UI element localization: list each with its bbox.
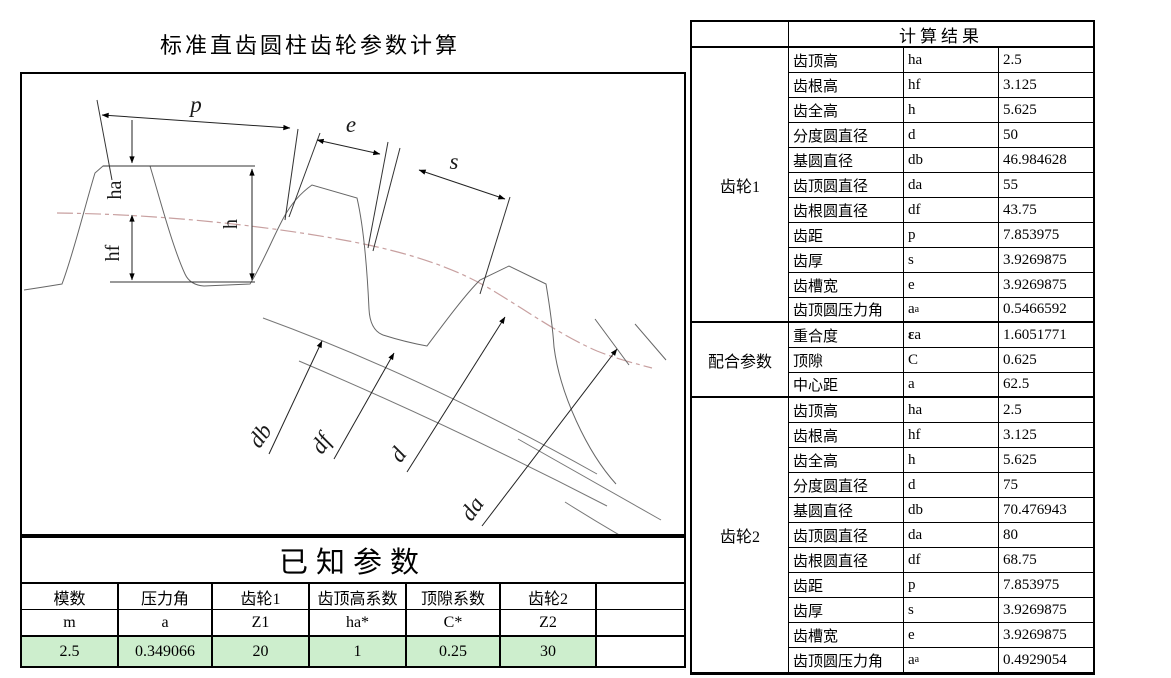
known-col-name: 模数 — [22, 584, 119, 610]
leader-da — [482, 349, 617, 526]
param-value: 46.984628 — [999, 148, 1093, 173]
param-symbol: a — [904, 373, 999, 398]
known-col-symbol: ha* — [310, 610, 407, 637]
known-col-value: 0.349066 — [119, 637, 213, 666]
results-header-empty-cell — [692, 22, 789, 48]
gear-calculation-sheet: 标准直齿圆柱齿轮参数计算 — [0, 0, 1171, 678]
param-value: 3.9269875 — [999, 273, 1093, 298]
section-label: 齿轮1 — [692, 48, 789, 323]
known-col-value: 2.5 — [22, 637, 119, 666]
param-value: 68.75 — [999, 548, 1093, 573]
param-symbol: aa — [904, 298, 999, 323]
known-params-table: 已知参数 模数压力角齿轮1齿顶高系数顶隙系数齿轮2maZ1ha*C*Z22.50… — [20, 536, 686, 668]
param-symbol: h — [904, 448, 999, 473]
param-name: 齿厚 — [789, 598, 904, 623]
param-symbol: aa — [904, 648, 999, 673]
known-col-value: 0.25 — [407, 637, 501, 666]
param-name: 齿根高 — [789, 73, 904, 98]
param-symbol: ha — [904, 398, 999, 423]
root-circle-arc — [299, 361, 607, 506]
known-col-symbol — [597, 610, 684, 637]
known-col-name: 齿顶高系数 — [310, 584, 407, 610]
results-header: 计算结果 — [789, 22, 1093, 48]
param-symbol: p — [904, 223, 999, 248]
label-ha: ha — [104, 180, 126, 199]
param-value: 3.9269875 — [999, 248, 1093, 273]
param-value: 2.5 — [999, 398, 1093, 423]
param-value: 55 — [999, 173, 1093, 198]
param-name: 齿顶圆压力角 — [789, 298, 904, 323]
known-col-name — [597, 584, 684, 610]
param-value: 3.125 — [999, 73, 1093, 98]
param-value: 50 — [999, 123, 1093, 148]
leader-lines — [269, 317, 617, 526]
param-symbol: s — [904, 598, 999, 623]
param-value: 62.5 — [999, 373, 1093, 398]
label-e: e — [346, 112, 356, 137]
outer-arc — [565, 502, 642, 534]
param-value: 3.9269875 — [999, 598, 1093, 623]
param-value: 0.625 — [999, 348, 1093, 373]
label-d: d — [384, 442, 411, 466]
gear-diagram: p e s ha hf h db df d da — [20, 72, 686, 536]
param-name: 重合度 — [789, 323, 904, 348]
param-name: 顶隙 — [789, 348, 904, 373]
section-label: 齿轮2 — [692, 398, 789, 673]
known-col-symbol: m — [22, 610, 119, 637]
param-name: 分度圆直径 — [789, 473, 904, 498]
known-col-name: 顶隙系数 — [407, 584, 501, 610]
param-value: 2.5 — [999, 48, 1093, 73]
param-name: 齿全高 — [789, 448, 904, 473]
known-col-symbol: Z2 — [501, 610, 597, 637]
param-symbol: df — [904, 198, 999, 223]
known-col-value: 20 — [213, 637, 310, 666]
known-col-value: 30 — [501, 637, 597, 666]
param-symbol: db — [904, 498, 999, 523]
gear-diagram-svg: p e s ha hf h db df d da — [22, 74, 684, 534]
label-df: df — [306, 426, 339, 458]
section-label: 配合参数 — [692, 323, 789, 398]
param-symbol: s — [904, 248, 999, 273]
param-value: 70.476943 — [999, 498, 1093, 523]
param-name: 齿根高 — [789, 423, 904, 448]
param-name: 齿顶圆直径 — [789, 523, 904, 548]
param-value: 0.5466592 — [999, 298, 1093, 323]
param-symbol: p — [904, 573, 999, 598]
param-value: 3.9269875 — [999, 623, 1093, 648]
param-symbol: e — [904, 273, 999, 298]
param-value: 1.6051771 — [999, 323, 1093, 348]
known-col-value: 1 — [310, 637, 407, 666]
dimension-e — [317, 140, 380, 154]
label-da: da — [455, 492, 489, 525]
known-col-name: 压力角 — [119, 584, 213, 610]
param-name: 齿距 — [789, 223, 904, 248]
param-symbol: hf — [904, 423, 999, 448]
param-name: 基圆直径 — [789, 498, 904, 523]
param-value: 0.4929054 — [999, 648, 1093, 673]
results-table: 计算结果 齿轮1齿顶高ha2.5齿根高hf3.125齿全高h5.625分度圆直径… — [690, 20, 1095, 675]
param-value: 80 — [999, 523, 1093, 548]
param-symbol: d — [904, 473, 999, 498]
tip-circle-tick — [595, 319, 629, 365]
known-col-symbol: a — [119, 610, 213, 637]
label-hf: hf — [102, 244, 124, 261]
known-col-value — [597, 637, 684, 666]
label-h: h — [220, 219, 242, 229]
param-value: 5.625 — [999, 98, 1093, 123]
param-name: 齿厚 — [789, 248, 904, 273]
param-name: 齿顶圆直径 — [789, 173, 904, 198]
label-s: s — [450, 149, 459, 174]
param-value: 7.853975 — [999, 573, 1093, 598]
param-symbol: db — [904, 148, 999, 173]
param-value: 7.853975 — [999, 223, 1093, 248]
param-value: 43.75 — [999, 198, 1093, 223]
param-name: 基圆直径 — [789, 148, 904, 173]
param-symbol: da — [904, 523, 999, 548]
param-symbol: d — [904, 123, 999, 148]
param-value: 75 — [999, 473, 1093, 498]
leader-df — [334, 353, 394, 459]
known-col-name: 齿轮1 — [213, 584, 310, 610]
known-col-name: 齿轮2 — [501, 584, 597, 610]
param-name: 齿根圆直径 — [789, 548, 904, 573]
param-name: 齿全高 — [789, 98, 904, 123]
page-title: 标准直齿圆柱齿轮参数计算 — [100, 28, 520, 60]
param-value: 3.125 — [999, 423, 1093, 448]
param-name: 齿顶高 — [789, 48, 904, 73]
param-symbol: da — [904, 173, 999, 198]
param-name: 齿顶圆压力角 — [789, 648, 904, 673]
param-symbol: h — [904, 98, 999, 123]
param-symbol: ε a — [904, 323, 999, 348]
leader-d — [407, 317, 505, 472]
param-name: 齿槽宽 — [789, 273, 904, 298]
param-symbol: hf — [904, 73, 999, 98]
param-name: 中心距 — [789, 373, 904, 398]
param-symbol: e — [904, 623, 999, 648]
known-params-title: 已知参数 — [22, 538, 684, 584]
param-name: 齿槽宽 — [789, 623, 904, 648]
pitch-line — [57, 213, 652, 368]
known-col-symbol: C* — [407, 610, 501, 637]
param-symbol: df — [904, 548, 999, 573]
param-value: 5.625 — [999, 448, 1093, 473]
param-symbol: ha — [904, 48, 999, 73]
param-name: 分度圆直径 — [789, 123, 904, 148]
label-p: p — [188, 92, 202, 117]
param-symbol: C — [904, 348, 999, 373]
param-name: 齿根圆直径 — [789, 198, 904, 223]
param-name: 齿顶高 — [789, 398, 904, 423]
known-col-symbol: Z1 — [213, 610, 310, 637]
param-name: 齿距 — [789, 573, 904, 598]
dimension-lines — [102, 115, 505, 280]
tip-circle-tick2 — [635, 324, 666, 360]
dimension-s — [419, 170, 505, 199]
